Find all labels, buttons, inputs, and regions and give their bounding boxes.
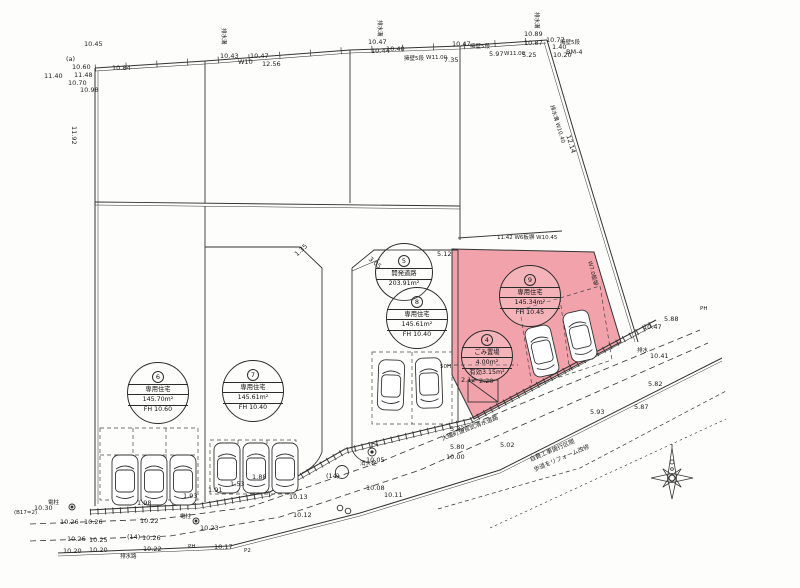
dimension-label: 5.80 [450,443,464,451]
dimension-label: 排水溝 [376,20,384,37]
parcel-info-row: FH 10.40 [387,330,447,340]
dimension-label: 5.82 [648,380,662,388]
parcel-info-row: 専用住宅 [223,382,283,392]
dimension-label: 11.42 W6板塀 W10.45 [497,233,557,241]
parcel-info-row: 有効3.15m² [462,368,512,378]
dimension-label: 擁壁5段 [470,42,490,50]
dimension-label: 10.11 [384,491,403,499]
dimension-label: 10.47 [643,323,662,331]
dimension-label: 1.93 [183,492,197,500]
dimension-label: 1.53 [230,480,244,488]
dimension-label: 1.91 [208,486,222,494]
parcel-number: 7 [247,369,259,381]
dimension-label: PH [700,306,707,312]
dimension-label: (14) [326,472,339,480]
sidewalk-dashed-2 [490,419,726,528]
parcel-badge-lot6: 6専用住宅145.70m²FH 10.60 [127,362,189,424]
parcel-info-row: 4.00m² [462,357,512,367]
parcel-info-row: FH 10.60 [128,405,188,415]
dimension-label: 5.93 [590,408,604,416]
dimension-label: 10.40 [386,45,405,53]
dimension-label: 10.20 [89,546,108,554]
dimension-label: 50H [440,364,451,370]
dimension-label: 10.26 [142,534,161,542]
parcel-info-row: 145.61m² [223,392,283,402]
dimension-label: 10.26 [84,518,103,526]
dimension-label: (a) [66,55,75,63]
car-icon [243,443,269,493]
dimension-label: 10.13 [289,493,308,501]
dimension-label: 10.41 [650,352,669,360]
dimension-label: 10.12 [293,511,312,519]
dimension-label: 10.47 [452,40,471,48]
parcel-number: 6 [152,371,164,383]
dimension-label: 10.89 [524,30,543,38]
dimension-label: 排水路 [120,552,137,560]
car-icon [141,455,167,505]
dimension-label: 10.26 [67,535,86,543]
dimension-label: PH [188,544,195,550]
dimension-label: (14) [127,533,140,541]
dimension-label: 10.22 [140,517,159,525]
parcel-number: 4 [481,334,493,346]
site-plan-sheet: 10.45(a)10.6010.8411.4011.4810.7010.9811… [0,0,800,588]
parcel-info-row: 開発道路 [376,268,432,278]
dimension-label: 10.22 [143,545,162,553]
parcel-info-row: 専用住宅 [387,309,447,319]
dimension-label: 11.48 [74,71,93,79]
dimension-label: 排水溝 [533,12,541,29]
car-icon [112,455,138,505]
dimension-label: 5.87 [634,403,648,411]
parcel-info-row: ごみ置場 [462,347,512,357]
parcel-badge-garbage: 4ごみ置場4.00m²有効3.15m² [461,330,513,382]
dimension-label: 10.08 [366,484,385,492]
dimension-label: 電柱 [180,512,191,520]
dimension-label: 10.26 [60,518,79,526]
dimension-label: 10.45 [84,40,103,48]
dimension-label: 10.23 [200,524,219,532]
dimension-label: 10.20 [63,547,82,555]
dimension-label: BM-4 [566,48,583,56]
dimension-label: 電柱 [48,498,59,506]
dimension-label: 11.40 [44,72,63,80]
dimension-label: 10.60 [72,63,91,71]
dimension-label: 1.88 [252,473,266,481]
dimension-label: 排水 [637,346,648,354]
parcel-info-row: FH 10.45 [500,308,560,318]
dimension-label: 10.47 [368,38,387,46]
dimension-label: 10.25 [89,536,108,544]
dimension-label: (B17=2) [14,510,37,516]
dimension-label: 7.35 [444,56,458,64]
dimension-label: 12.56 [262,60,281,68]
parcel-badge-lot8: 8専用住宅145.61m²FH 10.40 [386,287,448,349]
parcel-info-row: 145.61m² [387,319,447,329]
dimension-label: 10.98 [80,86,99,94]
parcel-number: 9 [524,274,536,286]
car-icon [377,360,405,411]
compass-rose-icon [651,444,693,499]
dimension-label: 10.43 [220,52,239,60]
dimension-label: 擁壁5段 [404,54,424,62]
dimension-label: 10.84 [112,64,131,72]
dimension-label: 5.25 [522,51,536,59]
parcel-number: 8 [411,296,423,308]
dimension-label: 10.00 [446,453,465,461]
dimension-label: 11.92 [70,126,78,145]
parcel-badge-lot9: 9専用住宅145.34m²FH 10.45 [499,265,561,327]
parcel-info-row: 専用住宅 [128,384,188,394]
dimension-label: 10.05 [366,456,385,464]
dimension-label: 10.87 [524,39,543,47]
road [30,320,726,556]
dimension-label: 排水溝 [220,28,228,45]
dimension-label: P2 [244,548,251,554]
dimension-label: 1.98 [137,499,151,507]
dimension-label: 5.88 [664,315,678,323]
dimension-label: 5.02 [500,441,514,449]
car-icon [415,358,443,409]
parcel-info-row: 145.34m² [500,297,560,307]
dimension-label: 擁壁5段 [560,38,580,46]
parcel-info-row: 専用住宅 [500,287,560,297]
dimension-label: 10.47 [250,52,269,60]
parcel-info-row: 145.70m² [128,394,188,404]
dimension-label: 5.97 [489,50,503,58]
parcel-info-row: FH 10.40 [223,403,283,413]
parcel-number: 5 [398,255,410,267]
car-icon [272,443,298,493]
parcel-badge-lot7: 7専用住宅145.61m²FH 10.40 [222,360,284,422]
dimension-label: 5.12 [437,250,451,258]
dimension-label: 10.17 [214,543,233,551]
